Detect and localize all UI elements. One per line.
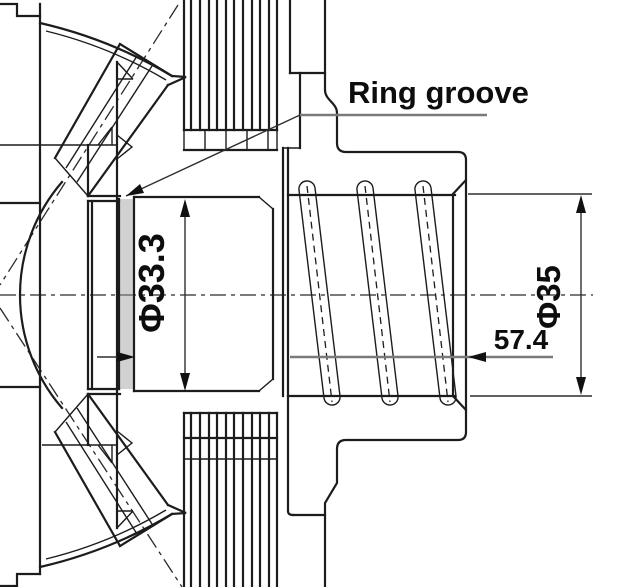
bottom-spline-block <box>184 413 277 587</box>
coil-2 <box>357 181 398 405</box>
pinion-long-edge-upper <box>55 44 120 158</box>
lower-pinion-gear <box>40 394 186 567</box>
technical-drawing-canvas: Φ33.3 Φ35 57.4 Ring groove <box>0 0 640 587</box>
ring-groove-callout: Ring groove <box>126 75 529 196</box>
ring-groove-label: Ring groove <box>348 75 529 110</box>
length-arrow-right <box>468 352 486 362</box>
hub-length-label: 57.4 <box>494 324 549 355</box>
outer-diameter-label: Φ35 <box>530 265 567 329</box>
bore-right-chamfer-bottom <box>259 379 273 391</box>
upper-pinion-gear <box>40 23 186 196</box>
coil-1 <box>299 181 340 405</box>
section-boundary-line-2 <box>288 148 293 515</box>
inner-diameter-arrow-up <box>180 199 190 217</box>
top-left-step <box>0 4 40 16</box>
pinion-root-lower <box>55 394 88 432</box>
helical-groove-coils <box>299 181 456 405</box>
pinion-flank-upper <box>88 85 168 196</box>
pocket-top-corner-chamfer <box>98 127 112 145</box>
inner-diameter-arrow-down <box>180 373 190 391</box>
inner-diameter-label: Φ33.3 <box>131 233 172 333</box>
coil-3 <box>415 181 456 405</box>
spline-teeth-lines-top <box>184 0 277 130</box>
top-spline-block <box>184 0 277 150</box>
bore-right-chamfer-top <box>259 197 273 209</box>
outer-diameter-arrow-up <box>576 195 586 213</box>
wall-top-chamfer <box>117 62 133 79</box>
pinion-flank-lower <box>88 394 168 505</box>
outer-diameter-arrow-down <box>576 377 586 395</box>
wall-bottom-chamfer <box>117 511 133 528</box>
bottom-left-step <box>0 574 40 586</box>
pinion-long-edge-lower <box>55 432 120 546</box>
lower-right-case-wall <box>325 396 466 587</box>
ring-groove-leader-arrow <box>126 184 144 196</box>
differential-case-section-drawing: Φ33.3 Φ35 57.4 Ring groove <box>0 0 640 587</box>
ring-groove-leader-diagonal <box>126 115 300 196</box>
